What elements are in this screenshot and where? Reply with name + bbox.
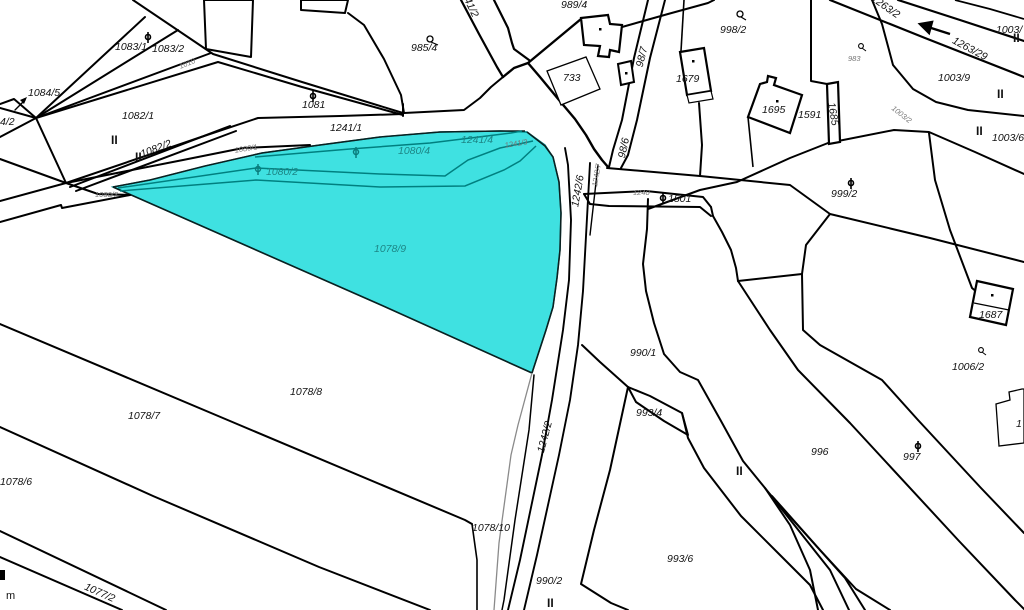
svg-text:1082/1: 1082/1 bbox=[122, 110, 154, 122]
svg-text:1083/2: 1083/2 bbox=[152, 43, 184, 55]
svg-text:1: 1 bbox=[1016, 418, 1022, 430]
svg-text:999/2: 999/2 bbox=[831, 188, 857, 200]
svg-text:4/2: 4/2 bbox=[0, 116, 15, 128]
svg-text:1003/: 1003/ bbox=[996, 24, 1023, 36]
svg-text:II: II bbox=[976, 124, 983, 138]
svg-text:983: 983 bbox=[848, 54, 861, 63]
svg-text:1241/1: 1241/1 bbox=[330, 122, 362, 134]
svg-text:1080/2: 1080/2 bbox=[266, 166, 298, 178]
svg-text:996: 996 bbox=[811, 446, 829, 458]
svg-text:1078/10: 1078/10 bbox=[472, 522, 510, 534]
svg-text:II: II bbox=[736, 464, 743, 478]
svg-text:985/4: 985/4 bbox=[411, 42, 437, 54]
svg-text:1240: 1240 bbox=[633, 188, 651, 197]
svg-text:1078/9: 1078/9 bbox=[374, 243, 406, 255]
svg-text:990/2: 990/2 bbox=[536, 575, 562, 587]
svg-text:II: II bbox=[547, 596, 554, 610]
svg-text:m: m bbox=[6, 590, 15, 602]
svg-text:1078/6: 1078/6 bbox=[0, 476, 32, 488]
svg-text:1003/9: 1003/9 bbox=[938, 72, 970, 84]
svg-text:990/1: 990/1 bbox=[630, 347, 656, 359]
svg-text:1695: 1695 bbox=[762, 104, 786, 116]
svg-text:733: 733 bbox=[563, 72, 581, 84]
svg-text:1083/1: 1083/1 bbox=[115, 41, 147, 53]
svg-text:1679: 1679 bbox=[676, 73, 700, 85]
svg-text:998/2: 998/2 bbox=[720, 24, 746, 36]
svg-text:1078/7: 1078/7 bbox=[128, 410, 161, 422]
svg-text:1084/5: 1084/5 bbox=[28, 87, 60, 99]
svg-text:1687: 1687 bbox=[979, 309, 1004, 321]
svg-text:989/4: 989/4 bbox=[561, 0, 587, 11]
svg-text:II: II bbox=[111, 133, 118, 147]
svg-text:1006/2: 1006/2 bbox=[952, 361, 984, 373]
svg-text:II: II bbox=[997, 87, 1004, 101]
svg-text:993/4: 993/4 bbox=[636, 407, 662, 419]
svg-text:1080/3: 1080/3 bbox=[95, 190, 119, 199]
svg-text:1501: 1501 bbox=[668, 193, 691, 205]
svg-text:1078/8: 1078/8 bbox=[290, 386, 322, 398]
svg-text:993/6: 993/6 bbox=[667, 553, 693, 565]
svg-text:997: 997 bbox=[903, 451, 922, 463]
svg-text:1081: 1081 bbox=[302, 99, 325, 111]
svg-text:1003/6: 1003/6 bbox=[992, 132, 1024, 144]
svg-text:1591: 1591 bbox=[798, 109, 821, 121]
svg-text:1080/4: 1080/4 bbox=[398, 145, 430, 157]
svg-text:1241/4: 1241/4 bbox=[461, 134, 493, 146]
